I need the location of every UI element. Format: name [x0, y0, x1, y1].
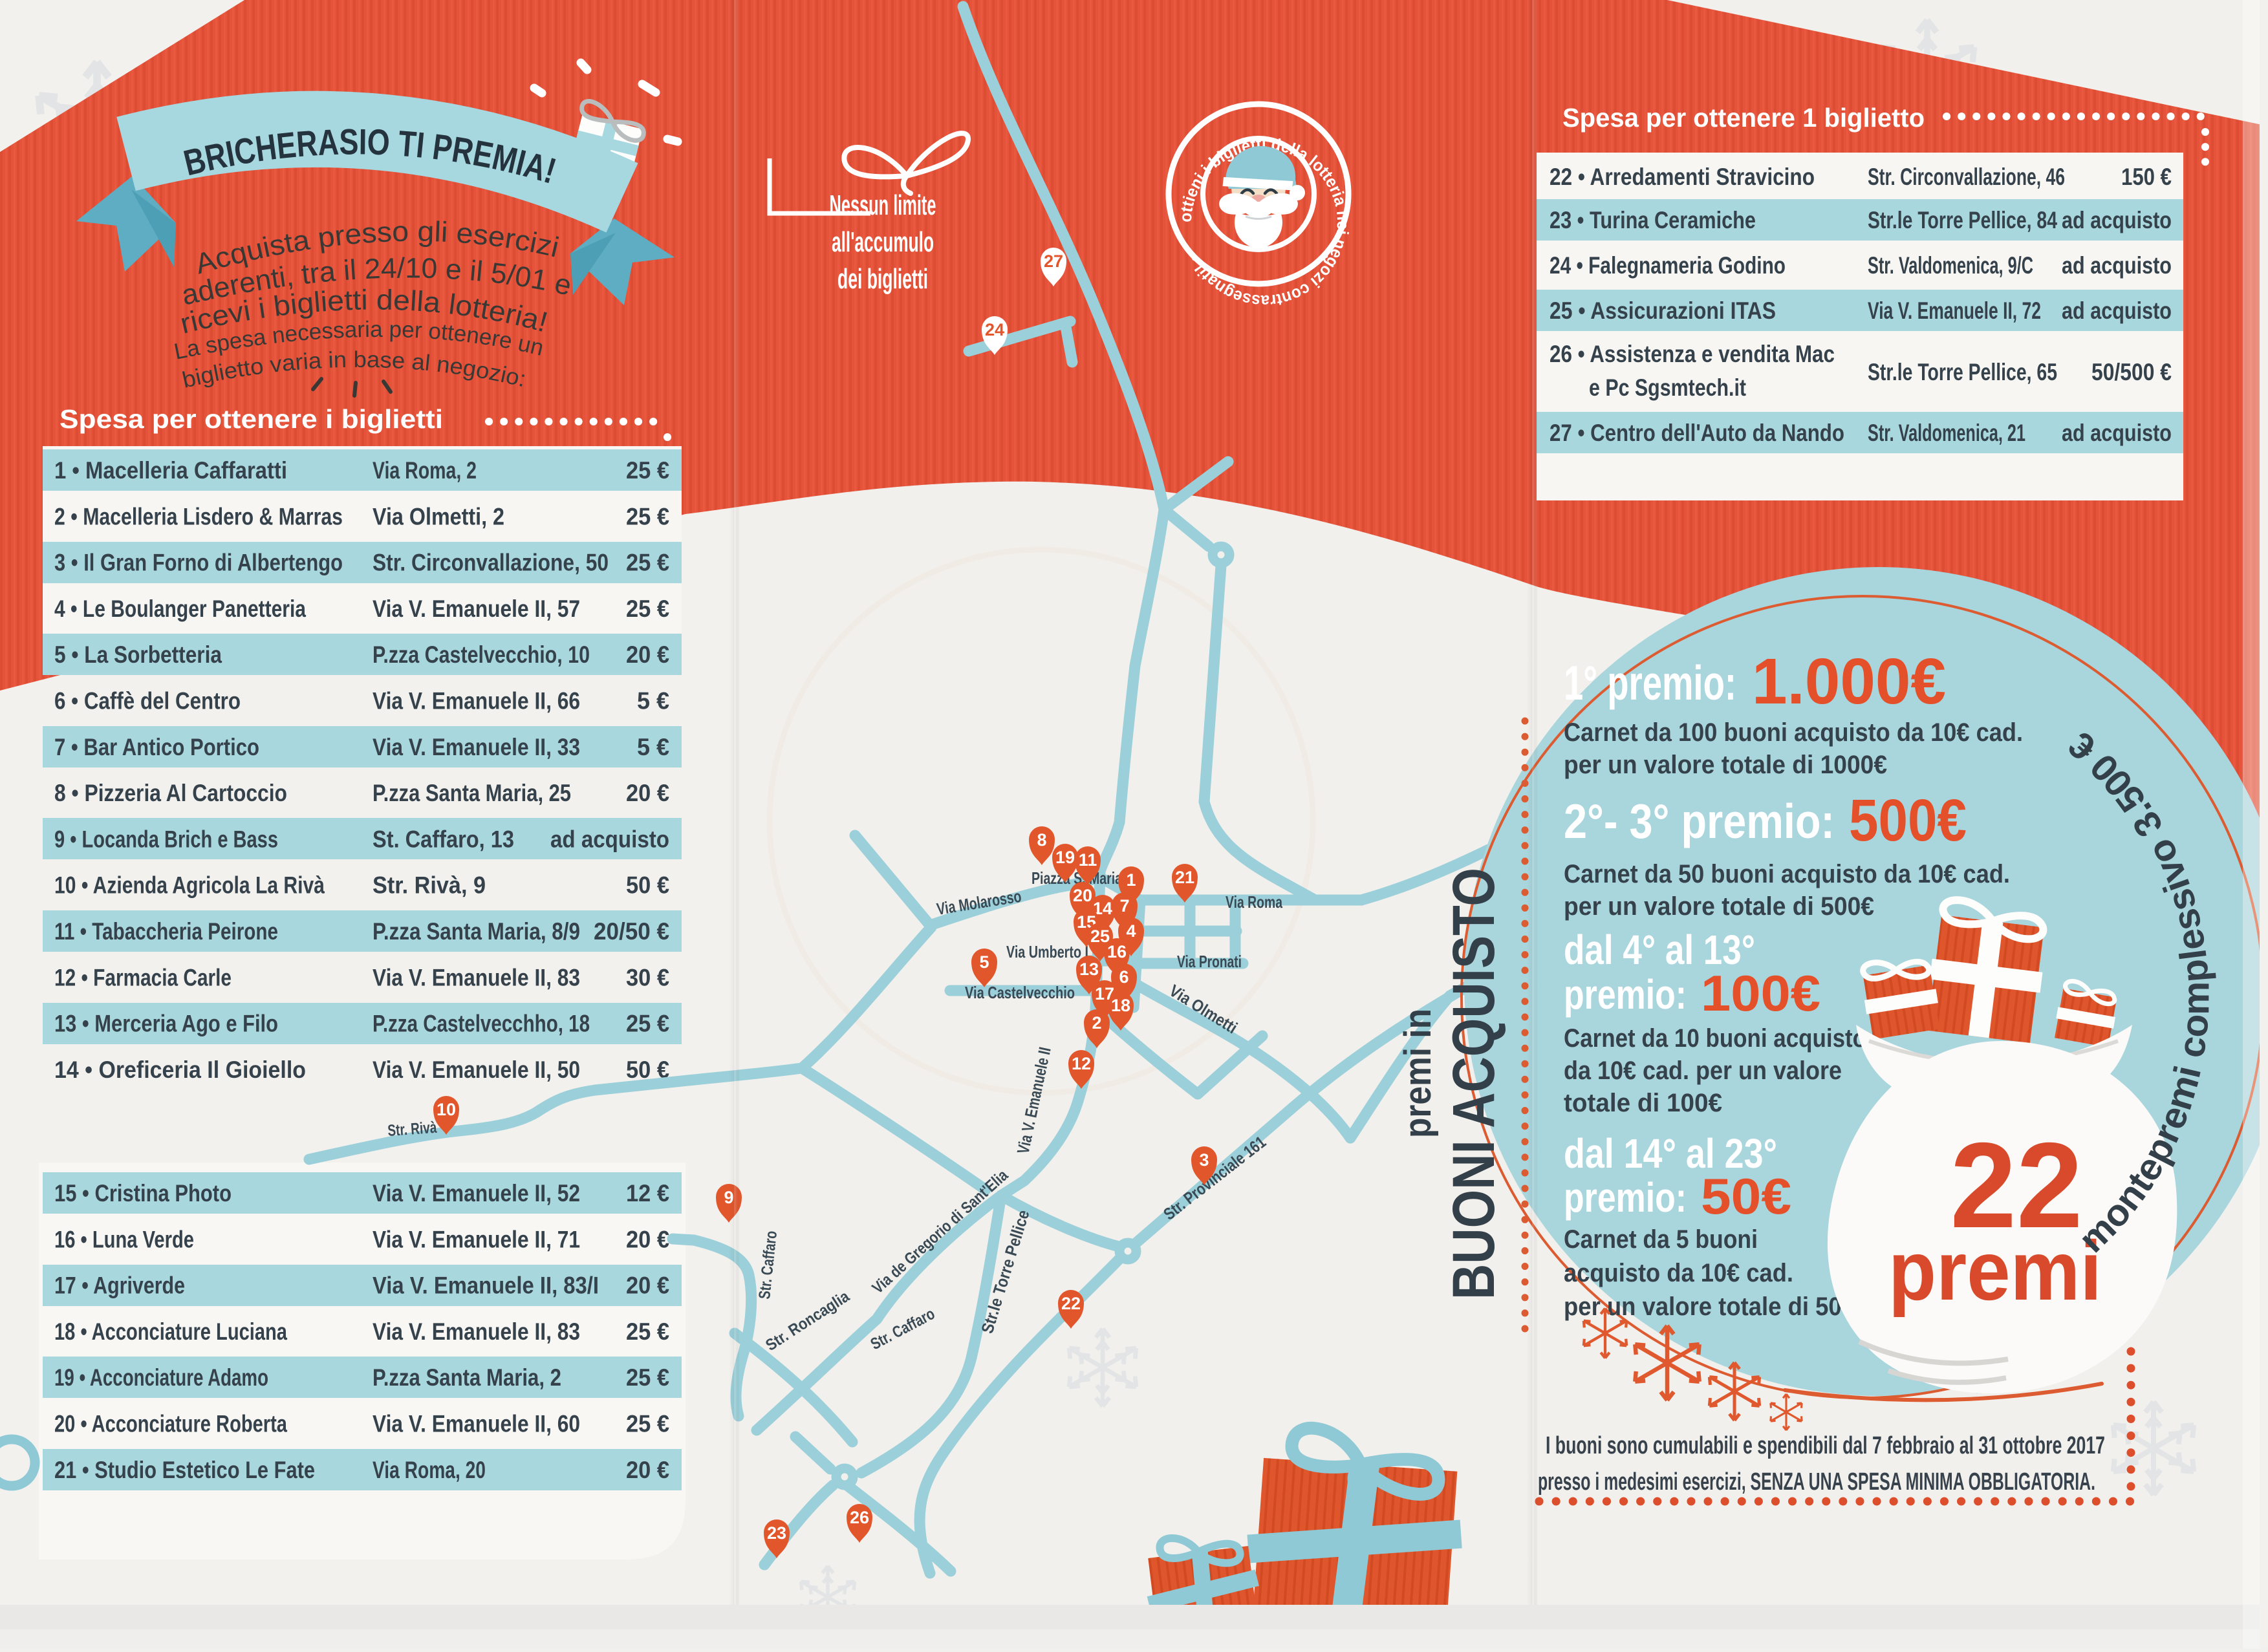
svg-text:Spesa per ottenere 1 biglietto: Spesa per ottenere 1 biglietto [1562, 103, 1925, 133]
svg-text:dei biglietti: dei biglietti [837, 263, 928, 295]
svg-text:ad acquisto: ad acquisto [2062, 297, 2172, 324]
svg-text:Via V. Emanuele II, 52: Via V. Emanuele II, 52 [373, 1180, 580, 1207]
svg-text:Str.le Torre Pellice, 84: Str.le Torre Pellice, 84 [1868, 207, 2057, 233]
svg-text:totale di 100€: totale di 100€ [1564, 1089, 1722, 1117]
svg-text:Via Castelvecchio: Via Castelvecchio [965, 983, 1075, 1002]
svg-text:Carnet da 50 buoni acquisto da: Carnet da 50 buoni acquisto da 10€ cad. [1564, 860, 2010, 888]
svg-text:per un valore totale di 500€: per un valore totale di 500€ [1564, 892, 1874, 921]
svg-text:Via V. Emanuele II, 83/I: Via V. Emanuele II, 83/I [373, 1272, 599, 1299]
svg-text:10 • Azienda Agricola La Rivà: 10 • Azienda Agricola La Rivà [54, 872, 325, 899]
svg-text:24: 24 [985, 320, 1004, 339]
svg-text:all'accumulo: all'accumulo [832, 226, 934, 258]
svg-text:per un valore totale di 50€: per un valore totale di 50€ [1564, 1293, 1855, 1321]
svg-text:Via V. Emanuele II, 60: Via V. Emanuele II, 60 [373, 1411, 580, 1437]
svg-text:10: 10 [437, 1100, 456, 1119]
svg-text:23: 23 [767, 1523, 786, 1543]
svg-text:premio:: premio: [1564, 1174, 1687, 1221]
svg-text:da 10€ cad. per un valore: da 10€ cad. per un valore [1564, 1057, 1842, 1085]
svg-text:5: 5 [979, 952, 989, 972]
svg-text:20 • Acconciature Roberta: 20 • Acconciature Roberta [54, 1411, 287, 1437]
svg-text:21 • Studio Estetico Le Fate: 21 • Studio Estetico Le Fate [54, 1457, 315, 1483]
svg-text:Via Roma: Via Roma [1226, 892, 1282, 912]
svg-text:25 €: 25 € [626, 1411, 669, 1437]
svg-text:premio:: premio: [1564, 971, 1687, 1018]
svg-text:11: 11 [1079, 850, 1097, 870]
svg-text:6 • Caffè del Centro: 6 • Caffè del Centro [54, 688, 241, 714]
svg-text:23 • Turina Ceramiche: 23 • Turina Ceramiche [1550, 207, 1756, 233]
svg-text:8: 8 [1037, 830, 1046, 850]
svg-text:premi: premi [1888, 1223, 2102, 1318]
svg-text:100€: 100€ [1701, 965, 1820, 1022]
svg-text:26: 26 [850, 1508, 869, 1527]
svg-text:Str. Rivà, 9: Str. Rivà, 9 [373, 872, 486, 899]
svg-text:14 • Oreficeria Il Gioiello: 14 • Oreficeria Il Gioiello [54, 1057, 306, 1083]
svg-text:Str. Rivà: Str. Rivà [387, 1119, 437, 1140]
svg-text:25 €: 25 € [626, 457, 669, 484]
svg-text:16: 16 [1107, 942, 1127, 961]
svg-text:25 €: 25 € [626, 550, 669, 576]
svg-text:20 €: 20 € [626, 1457, 669, 1483]
svg-text:St. Caffaro, 13: St. Caffaro, 13 [373, 826, 514, 852]
svg-text:Via Umberto I: Via Umberto I [1006, 942, 1088, 961]
svg-text:30 €: 30 € [626, 964, 669, 991]
svg-text:8 • Pizzeria Al Cartoccio: 8 • Pizzeria Al Cartoccio [54, 780, 287, 806]
svg-text:4 • Le Boulanger Panetteria: 4 • Le Boulanger Panetteria [54, 595, 306, 622]
svg-text:1: 1 [1126, 870, 1136, 890]
svg-text:20 €: 20 € [626, 780, 669, 806]
svg-text:18: 18 [1111, 996, 1130, 1015]
svg-text:I buoni sono cumulabili e spen: I buoni sono cumulabili e spendibili dal… [1546, 1432, 2105, 1459]
svg-text:premi in: premi in [1397, 1009, 1439, 1138]
svg-text:26 • Assistenza e vendita Mac: 26 • Assistenza e vendita Mac [1550, 341, 1835, 367]
svg-text:20/50 €: 20/50 € [594, 918, 669, 945]
svg-text:50/500 €: 50/500 € [2091, 359, 2172, 385]
svg-text:22: 22 [1061, 1294, 1081, 1313]
svg-text:7: 7 [1119, 896, 1129, 916]
svg-text:1 • Macelleria Caffaratti: 1 • Macelleria Caffaratti [54, 457, 287, 484]
svg-text:5 €: 5 € [637, 688, 669, 714]
svg-text:20 €: 20 € [626, 641, 669, 668]
svg-text:2: 2 [1092, 1013, 1101, 1033]
svg-text:2 • Macelleria Lisdero & Marra: 2 • Macelleria Lisdero & Marras [54, 503, 343, 530]
svg-text:Via V. Emanuele II, 50: Via V. Emanuele II, 50 [373, 1057, 580, 1083]
svg-text:Str.le Torre Pellice, 65: Str.le Torre Pellice, 65 [1868, 359, 2057, 385]
svg-text:27 • Centro dell'Auto da Nando: 27 • Centro dell'Auto da Nando [1550, 420, 1844, 446]
svg-text:25 €: 25 € [626, 595, 669, 622]
svg-text:Spesa per ottenere i biglietti: Spesa per ottenere i biglietti [59, 404, 443, 434]
svg-text:19: 19 [1055, 848, 1075, 867]
svg-text:150 €: 150 € [2121, 164, 2172, 190]
svg-text:Via V. Emanuele II, 83: Via V. Emanuele II, 83 [373, 964, 580, 991]
svg-text:5 €: 5 € [637, 734, 669, 760]
svg-text:25 €: 25 € [626, 503, 669, 530]
svg-text:16 • Luna Verde: 16 • Luna Verde [54, 1226, 194, 1252]
svg-text:BUONI ACQUISTO: BUONI ACQUISTO [1441, 868, 1507, 1300]
svg-text:Str. Circonvallazione, 50: Str. Circonvallazione, 50 [373, 550, 609, 576]
svg-text:5 • La Sorbetteria: 5 • La Sorbetteria [54, 641, 222, 668]
svg-text:50€: 50€ [1701, 1168, 1791, 1225]
svg-text:Via V. Emanuele II, 71: Via V. Emanuele II, 71 [373, 1226, 580, 1252]
svg-text:2°- 3° premio:: 2°- 3° premio: [1564, 794, 1835, 848]
svg-text:7 • Bar Antico Portico: 7 • Bar Antico Portico [54, 734, 259, 760]
svg-text:ad acquisto: ad acquisto [2062, 252, 2172, 279]
svg-text:13: 13 [1079, 960, 1099, 979]
svg-text:1.000€: 1.000€ [1752, 645, 1946, 718]
svg-text:P.zza Castelvecchio, 10: P.zza Castelvecchio, 10 [373, 641, 590, 668]
svg-text:Str. Valdomenica, 9/C: Str. Valdomenica, 9/C [1868, 252, 2033, 279]
svg-text:Carnet da 100 buoni acquisto d: Carnet da 100 buoni acquisto da 10€ cad. [1564, 718, 2023, 747]
svg-text:25 €: 25 € [626, 1011, 669, 1037]
svg-text:Via V. Emanuele II, 83: Via V. Emanuele II, 83 [373, 1318, 580, 1345]
svg-text:per un valore totale di 1000€: per un valore totale di 1000€ [1564, 751, 1887, 779]
svg-text:25 • Assicurazioni ITAS: 25 • Assicurazioni ITAS [1550, 297, 1776, 324]
svg-text:Via Roma, 20: Via Roma, 20 [373, 1457, 486, 1483]
svg-text:Via V. Emanuele II, 33: Via V. Emanuele II, 33 [373, 734, 580, 760]
svg-text:Str. Valdomenica, 21: Str. Valdomenica, 21 [1868, 420, 2025, 446]
svg-text:P.zza Santa Maria, 8/9: P.zza Santa Maria, 8/9 [373, 918, 580, 945]
svg-text:3 • Il Gran Forno di Alberteng: 3 • Il Gran Forno di Albertengo [54, 550, 343, 576]
svg-text:Carnet da 5 buoni: Carnet da 5 buoni [1564, 1225, 1758, 1254]
svg-text:P.zza Santa Maria, 25: P.zza Santa Maria, 25 [373, 780, 571, 806]
svg-text:Via Roma, 2: Via Roma, 2 [373, 457, 477, 484]
svg-text:25 €: 25 € [626, 1364, 669, 1391]
svg-text:9 • Locanda Brich e Bass: 9 • Locanda Brich e Bass [54, 826, 278, 852]
svg-text:Via V. Emanuele II, 66: Via V. Emanuele II, 66 [373, 688, 580, 714]
svg-text:Carnet da 10 buoni acquisto: Carnet da 10 buoni acquisto [1564, 1024, 1866, 1053]
svg-text:Via Pronati: Via Pronati [1177, 952, 1242, 971]
svg-text:15 • Cristina Photo: 15 • Cristina Photo [54, 1180, 232, 1207]
svg-text:13 • Merceria Ago e Filo: 13 • Merceria Ago e Filo [54, 1011, 278, 1037]
svg-text:12 €: 12 € [626, 1180, 669, 1207]
svg-text:Via V. Emanuele II, 57: Via V. Emanuele II, 57 [373, 595, 580, 622]
svg-text:6: 6 [1119, 967, 1129, 987]
svg-text:24 • Falegnameria Godino: 24 • Falegnameria Godino [1550, 252, 1786, 279]
svg-text:50 €: 50 € [626, 872, 669, 899]
svg-text:ad acquisto: ad acquisto [2062, 207, 2172, 233]
svg-text:P.zza Santa Maria, 2: P.zza Santa Maria, 2 [373, 1364, 561, 1391]
svg-text:20 €: 20 € [626, 1226, 669, 1252]
svg-text:acquisto da 10€ cad.: acquisto da 10€ cad. [1564, 1259, 1793, 1287]
svg-text:4: 4 [1126, 921, 1136, 941]
svg-text:500€: 500€ [1849, 788, 1967, 853]
svg-text:1° premio:: 1° premio: [1564, 656, 1736, 710]
svg-text:11 • Tabaccheria Peirone: 11 • Tabaccheria Peirone [54, 918, 278, 945]
svg-text:12: 12 [1072, 1054, 1091, 1073]
svg-text:P.zza Castelvecchho, 18: P.zza Castelvecchho, 18 [373, 1011, 590, 1037]
svg-text:17 • Agriverde: 17 • Agriverde [54, 1272, 185, 1299]
svg-text:ad acquisto: ad acquisto [2062, 420, 2172, 446]
svg-text:12 • Farmacia Carle: 12 • Farmacia Carle [54, 964, 232, 991]
svg-text:ad acquisto: ad acquisto [550, 826, 669, 852]
svg-text:21: 21 [1175, 868, 1194, 887]
svg-text:20: 20 [1073, 886, 1092, 905]
svg-text:19 • Acconciature Adamo: 19 • Acconciature Adamo [54, 1364, 268, 1391]
svg-text:presso i medesimi esercizi, SE: presso i medesimi esercizi, SENZA UNA SP… [1538, 1468, 2095, 1496]
svg-text:18 • Acconciature Luciana: 18 • Acconciature Luciana [54, 1318, 287, 1345]
svg-text:3: 3 [1199, 1150, 1209, 1170]
svg-text:Nessun limite: Nessun limite [830, 189, 936, 221]
svg-text:Via Olmetti, 2: Via Olmetti, 2 [373, 503, 504, 530]
svg-text:Str. Circonvallazione, 46: Str. Circonvallazione, 46 [1868, 164, 2065, 190]
svg-text:27: 27 [1044, 252, 1063, 271]
svg-text:20 €: 20 € [626, 1272, 669, 1299]
svg-text:22 • Arredamenti Stravicino: 22 • Arredamenti Stravicino [1550, 164, 1815, 190]
svg-text:Via V. Emanuele II, 72: Via V. Emanuele II, 72 [1868, 297, 2041, 324]
svg-text:25 €: 25 € [626, 1318, 669, 1345]
svg-text:e Pc Sgsmtech.it: e Pc Sgsmtech.it [1589, 374, 1746, 401]
